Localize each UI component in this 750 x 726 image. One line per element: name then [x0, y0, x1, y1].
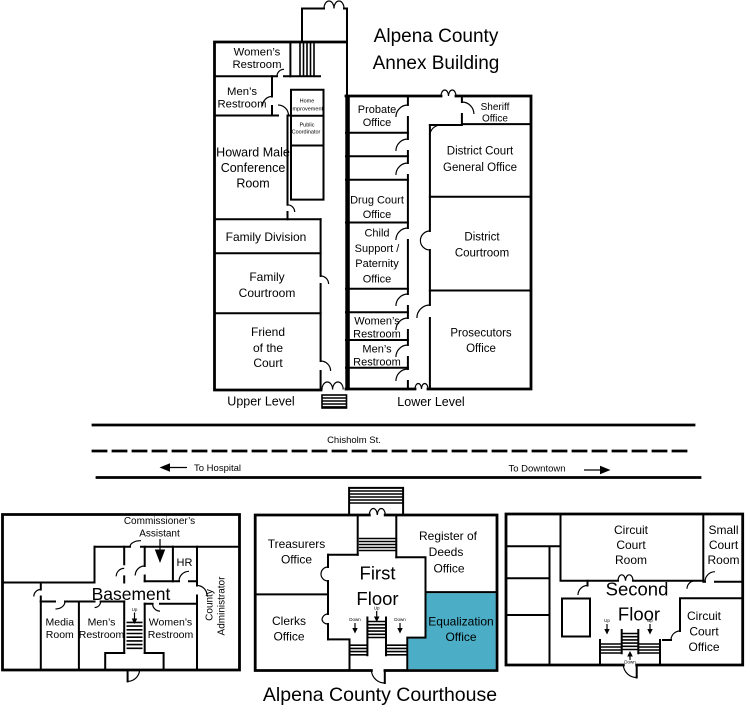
svg-text:Court: Court — [616, 538, 646, 552]
svg-text:Small: Small — [708, 523, 738, 537]
svg-text:Assistant: Assistant — [139, 529, 180, 540]
svg-text:Alpena County Courthouse: Alpena County Courthouse — [263, 684, 497, 706]
svg-text:Friend: Friend — [251, 325, 285, 339]
svg-text:Floor: Floor — [618, 604, 660, 625]
svg-text:Courtroom: Courtroom — [239, 286, 296, 300]
svg-text:District: District — [464, 232, 500, 244]
svg-text:Restroom: Restroom — [148, 629, 194, 641]
svg-text:Down: Down — [394, 617, 406, 622]
svg-text:Equalization: Equalization — [428, 615, 493, 629]
svg-text:Women’s: Women’s — [234, 47, 281, 59]
svg-text:Treasurers: Treasurers — [268, 537, 326, 551]
svg-text:Court: Court — [689, 625, 719, 639]
svg-text:Men’s: Men’s — [227, 86, 257, 98]
svg-text:Family Division: Family Division — [226, 230, 307, 244]
svg-text:Administrator: Administrator — [217, 576, 228, 636]
svg-text:Media: Media — [45, 617, 74, 629]
svg-text:Office: Office — [363, 117, 392, 129]
svg-text:Office: Office — [482, 114, 508, 125]
svg-text:Family: Family — [249, 270, 284, 284]
svg-text:Home: Home — [300, 99, 315, 105]
svg-text:HR: HR — [177, 557, 193, 569]
svg-text:Circuit: Circuit — [614, 523, 649, 537]
svg-text:Court: Court — [709, 538, 739, 552]
svg-text:Court: Court — [253, 356, 283, 370]
svg-text:Restroom: Restroom — [218, 99, 267, 111]
svg-text:Down: Down — [624, 660, 636, 665]
svg-text:Up: Up — [604, 618, 610, 623]
svg-text:Office: Office — [466, 343, 496, 355]
svg-text:Men’s: Men’s — [88, 617, 116, 629]
svg-text:Room: Room — [46, 629, 74, 641]
svg-text:Basement: Basement — [92, 584, 171, 604]
svg-text:Floor: Floor — [356, 588, 398, 609]
svg-text:General Office: General Office — [443, 162, 517, 174]
svg-text:Sheriff: Sheriff — [481, 102, 510, 113]
svg-text:Annex Building: Annex Building — [373, 53, 500, 74]
svg-text:To Downtown: To Downtown — [508, 464, 565, 475]
svg-text:Improvement: Improvement — [291, 107, 324, 113]
svg-text:Circuit: Circuit — [687, 609, 722, 623]
svg-text:Public: Public — [300, 123, 315, 129]
svg-text:Restroom: Restroom — [79, 629, 125, 641]
svg-text:Women’s: Women’s — [149, 617, 192, 629]
svg-text:Office: Office — [273, 630, 304, 644]
svg-text:Lower Level: Lower Level — [397, 395, 464, 409]
svg-text:Courtroom: Courtroom — [455, 248, 509, 260]
svg-text:Second: Second — [606, 579, 669, 600]
svg-text:Restroom: Restroom — [353, 329, 401, 341]
svg-text:Restroom: Restroom — [233, 59, 282, 71]
svg-text:Office: Office — [445, 630, 476, 644]
svg-text:Up: Up — [132, 607, 138, 612]
svg-text:Probate: Probate — [358, 104, 397, 116]
svg-text:Commissioner’s: Commissioner’s — [124, 516, 195, 527]
svg-text:Room: Room — [615, 553, 647, 567]
svg-text:Down: Down — [349, 617, 361, 622]
svg-text:Chisholm St.: Chisholm St. — [327, 435, 381, 446]
svg-text:Office: Office — [433, 562, 464, 576]
svg-text:First: First — [360, 563, 396, 584]
svg-text:Child: Child — [364, 228, 389, 240]
svg-text:Coordinator: Coordinator — [292, 130, 321, 136]
svg-text:Restroom: Restroom — [353, 356, 401, 368]
svg-text:Drug Court: Drug Court — [350, 195, 404, 207]
svg-text:Prosecutors: Prosecutors — [450, 328, 512, 340]
svg-text:Men’s: Men’s — [362, 343, 392, 355]
svg-text:County: County — [205, 589, 216, 621]
svg-text:Support /: Support / — [355, 243, 401, 255]
svg-text:Clerks: Clerks — [272, 614, 306, 628]
svg-text:Conference: Conference — [221, 161, 286, 175]
svg-text:Office: Office — [281, 553, 312, 567]
svg-text:Howard Male: Howard Male — [216, 146, 290, 160]
svg-text:Register of: Register of — [419, 529, 478, 543]
svg-text:Office: Office — [363, 273, 392, 285]
svg-text:Upper Level: Upper Level — [227, 395, 294, 409]
svg-text:Deeds: Deeds — [429, 545, 464, 559]
svg-text:Alpena County: Alpena County — [374, 26, 499, 47]
svg-text:Office: Office — [363, 209, 392, 221]
svg-text:Room: Room — [707, 553, 739, 567]
svg-text:Women’s: Women’s — [354, 316, 400, 328]
svg-text:Office: Office — [688, 640, 719, 654]
svg-text:of the: of the — [253, 341, 283, 355]
svg-text:Room: Room — [236, 177, 269, 191]
svg-text:To Hospital: To Hospital — [194, 463, 241, 474]
svg-text:Paternity: Paternity — [355, 258, 399, 270]
svg-text:District Court: District Court — [447, 146, 514, 158]
